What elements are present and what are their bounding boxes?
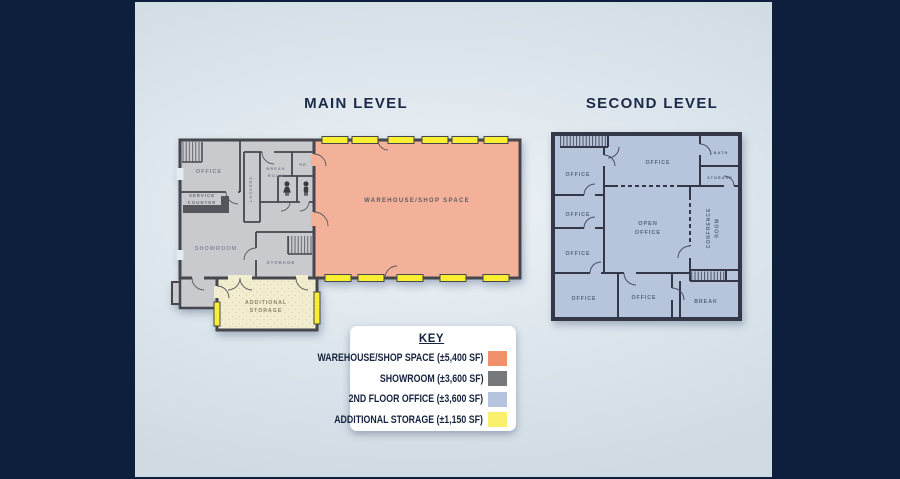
second-level-plan: OFFICE OFFICE OFFICE OFFICE OFFICE BATH … [553,134,740,319]
legend-label: WAREHOUSE/SHOP SPACE (±5,400 SF) [317,352,483,364]
label-open-1: OPEN [638,221,658,227]
legend-item-showroom: SHOWROOM (±3,600 SF) [356,369,507,390]
label-service-1: SERVICE [189,193,215,198]
legend: KEY WAREHOUSE/SHOP SPACE (±5,400 SF) SHO… [350,326,516,431]
label-rr: RR [299,163,306,167]
legend-item-office: 2ND FLOOR OFFICE (±3,600 SF) [356,389,507,410]
label-conference-2: ROOM [715,218,721,238]
label-additional-1: ADDITIONAL [245,300,287,306]
label-office-bottom: OFFICE [631,295,656,301]
label-break: BREAK [694,299,717,305]
floorplan-infographic: MAIN LEVEL SECOND LEVEL [0,0,900,479]
label-office-1: OFFICE [565,172,590,178]
legend-item-warehouse: WAREHOUSE/SHOP SPACE (±5,400 SF) [356,348,507,369]
staircase-main-office [182,142,202,162]
main-level-plan: OFFICE SERVICE COUNTER LOCKERS BREAK ROO… [172,137,520,331]
label-storage: STORAGE [267,260,296,265]
legend-swatch-warehouse [488,351,507,366]
label-open-2: OFFICE [635,230,661,236]
legend-swatch-office [488,392,507,407]
label-conference-1: CONFRENCE [706,208,712,249]
legend-label: ADDITIONAL STORAGE (±1,150 SF) [334,414,483,426]
legend-label: 2ND FLOOR OFFICE (±3,600 SF) [349,393,483,405]
legend-swatch-additional-storage [488,412,507,427]
label-office-top: OFFICE [645,160,670,166]
label-office-2: OFFICE [565,212,590,218]
label-lockers: LOCKERS [249,176,253,202]
legend-item-additional-storage: ADDITIONAL STORAGE (±1,150 SF) [356,410,507,431]
main-level-rooms [172,140,520,330]
legend-label: SHOWROOM (±3,600 SF) [379,373,483,385]
label-bath: BATH [714,150,729,155]
staircase-main-storage [288,236,312,254]
label-break-2: ROOM [268,173,284,178]
label-break-1: BREAK [266,166,285,171]
label-storage-2nd: STORAGE [707,176,733,180]
label-warehouse: WAREHOUSE/SHOP SPACE [364,198,470,204]
label-additional-2: STORAGE [250,308,283,314]
legend-title: KEY [356,333,507,345]
label-service-2: COUNTER [188,200,217,205]
label-office-4: OFFICE [571,296,596,302]
label-showroom: SHOWROOM [195,246,237,252]
label-office-3: OFFICE [565,251,590,257]
staircase-second-right [690,272,726,281]
label-office: OFFICE [196,169,222,175]
staircase-second-topleft [560,136,608,147]
legend-swatch-showroom [488,371,507,386]
